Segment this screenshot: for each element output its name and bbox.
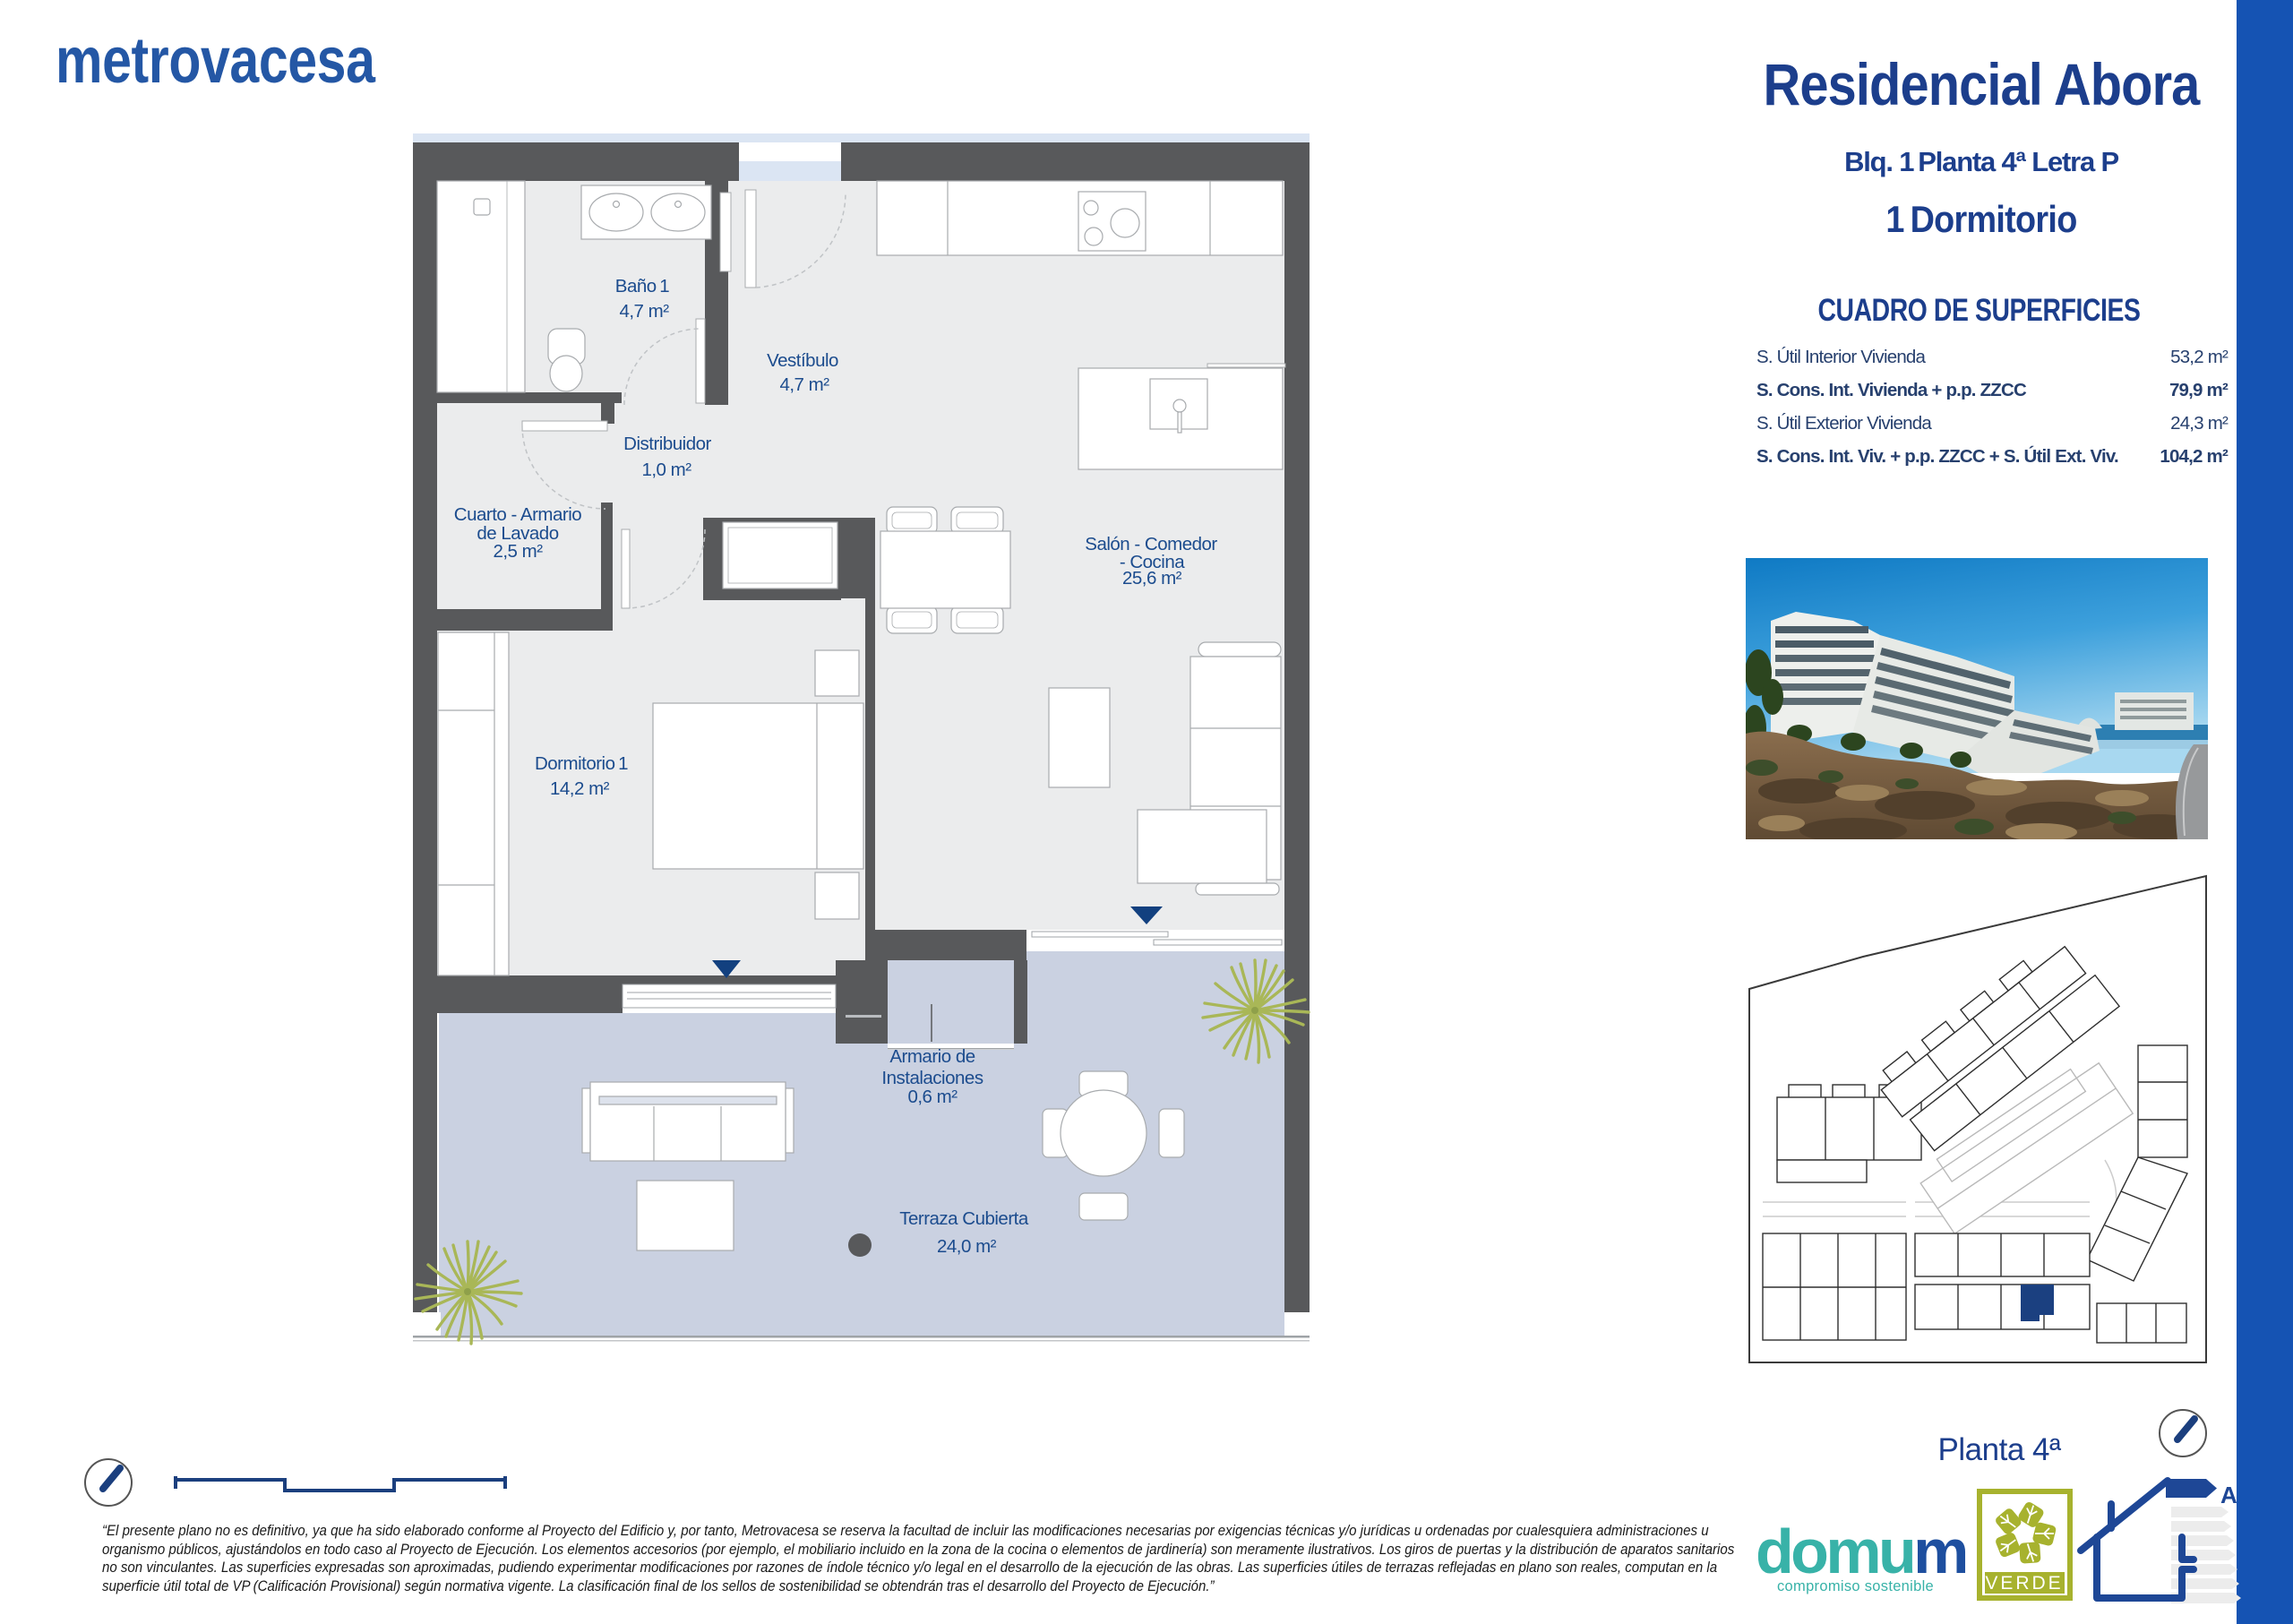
svg-text:24,0 m²: 24,0 m²: [937, 1236, 997, 1257]
svg-text:4,7 m²: 4,7 m²: [619, 301, 669, 322]
svg-text:2,5 m²: 2,5 m²: [493, 541, 543, 562]
svg-text:Instalaciones: Instalaciones: [881, 1068, 983, 1088]
svg-text:Distribuidor: Distribuidor: [623, 434, 711, 454]
svg-text:Armario de: Armario de: [889, 1046, 975, 1067]
svg-text:Dormitorio 1: Dormitorio 1: [535, 753, 628, 774]
svg-text:4,7 m²: 4,7 m²: [779, 374, 829, 395]
svg-text:A: A: [2220, 1482, 2237, 1508]
svg-text:Vestíbulo: Vestíbulo: [767, 350, 838, 371]
svg-text:0,6 m²: 0,6 m²: [907, 1087, 958, 1107]
svg-text:Baño 1: Baño 1: [615, 276, 669, 296]
svg-text:VERDE: VERDE: [1985, 1573, 2063, 1594]
svg-text:Cuarto - Armario: Cuarto - Armario: [454, 504, 581, 525]
svg-text:Terraza Cubierta: Terraza Cubierta: [899, 1208, 1029, 1229]
svg-text:1,0 m²: 1,0 m²: [641, 460, 691, 480]
svg-text:25,6 m²: 25,6 m²: [1122, 568, 1182, 589]
svg-text:14,2 m²: 14,2 m²: [550, 778, 610, 799]
